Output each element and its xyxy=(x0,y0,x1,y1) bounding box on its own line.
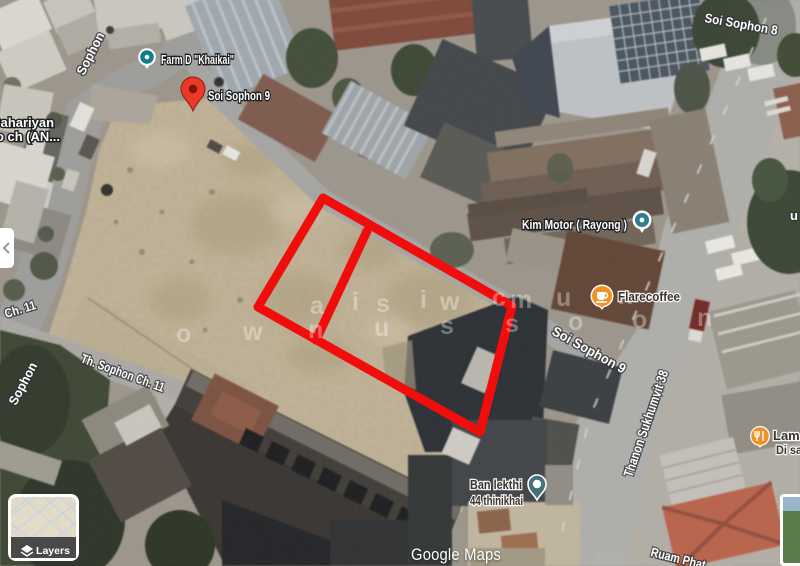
svg-text:n: n xyxy=(697,304,712,332)
svg-text:Sahariyan: Sahariyan xyxy=(0,116,54,130)
svg-text:Di sa: Di sa xyxy=(776,443,800,457)
svg-text:u: u xyxy=(374,314,389,342)
svg-text:u: u xyxy=(790,208,798,223)
svg-text:Soi Sophon 9: Soi Sophon 9 xyxy=(208,88,270,103)
svg-text:i: i xyxy=(420,286,427,314)
svg-text:Ban lekthi: Ban lekthi xyxy=(470,478,522,492)
svg-text:w: w xyxy=(242,318,263,346)
svg-text:o: o xyxy=(176,320,191,348)
svg-text:i: i xyxy=(352,288,359,316)
svg-text:Farm D "Khaikai": Farm D "Khaikai" xyxy=(161,53,234,67)
svg-text:Google Maps: Google Maps xyxy=(411,545,501,564)
svg-text:44 thinikhai: 44 thinikhai xyxy=(470,494,523,508)
svg-text:s: s xyxy=(505,310,519,338)
svg-text:Kim Motor ( Rayong ): Kim Motor ( Rayong ) xyxy=(522,218,627,232)
svg-text:Layers: Layers xyxy=(36,545,70,557)
svg-text:s: s xyxy=(440,312,454,340)
svg-text:Flarecoffee: Flarecoffee xyxy=(618,289,680,304)
svg-text:Lam: Lam xyxy=(773,428,800,443)
svg-text:o ch (AN...: o ch (AN... xyxy=(0,130,60,144)
svg-text:n: n xyxy=(308,316,323,344)
svg-text:o: o xyxy=(632,306,647,334)
svg-text:c: c xyxy=(492,284,506,312)
